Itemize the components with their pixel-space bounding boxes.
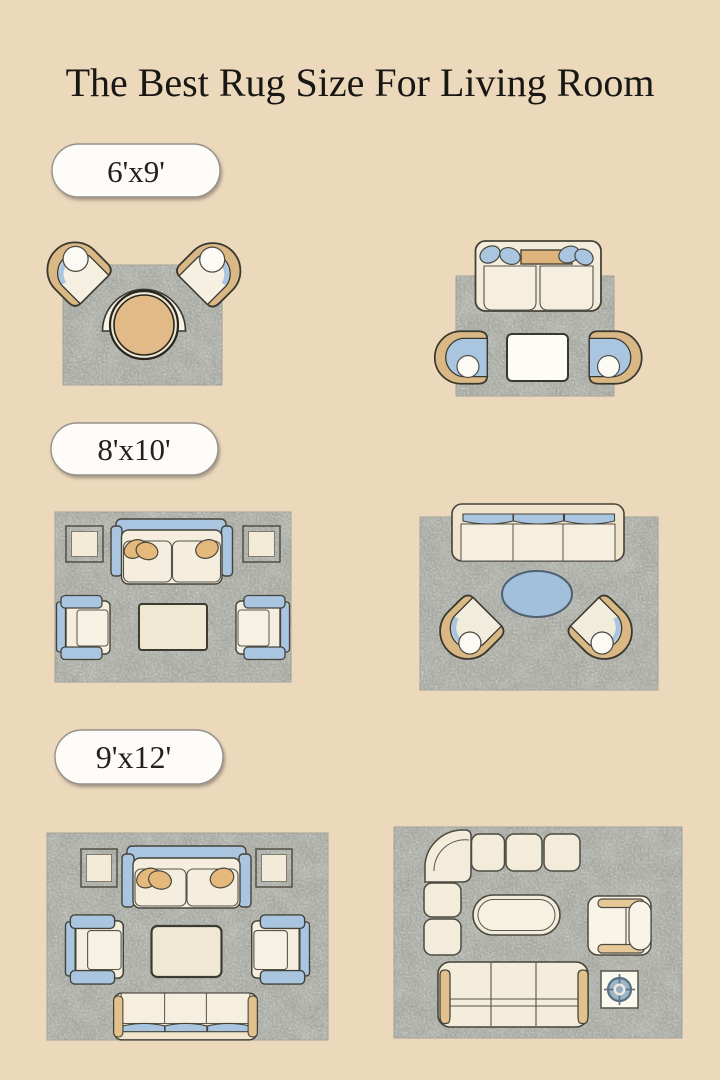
- svg-text:6'x9': 6'x9': [107, 154, 165, 189]
- svg-text:The Best Rug Size For Living R: The Best Rug Size For Living Room: [66, 60, 655, 105]
- svg-text:8'x10': 8'x10': [97, 432, 170, 467]
- svg-text:9'x12': 9'x12': [96, 739, 172, 775]
